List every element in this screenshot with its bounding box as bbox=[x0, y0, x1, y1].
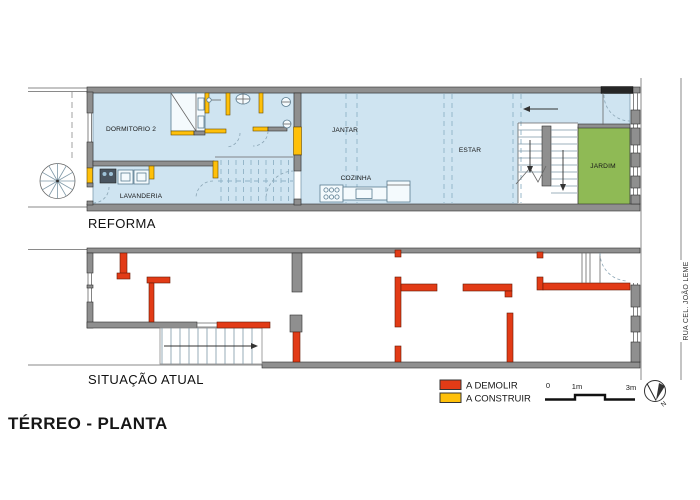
plan-reforma: DORMITORIO 2 LAVANDERIA JANTAR COZINHA E… bbox=[28, 87, 640, 232]
plan-situacao-atual: SITUAÇÃO ATUAL bbox=[28, 248, 640, 387]
plan-label-reforma: REFORMA bbox=[88, 216, 156, 231]
sheet-title: TÉRREO - PLANTA bbox=[8, 414, 168, 433]
new-wall bbox=[87, 168, 93, 183]
room-label-dormitorio: DORMITORIO 2 bbox=[106, 126, 156, 133]
existing-stair bbox=[160, 328, 262, 364]
legend-label-demolir: A DEMOLIR bbox=[466, 381, 518, 392]
legend-swatch-construir bbox=[440, 393, 461, 403]
legend-label-construir: A CONSTRUIR bbox=[466, 394, 531, 405]
street-fence-reforma bbox=[631, 93, 640, 204]
new-wall bbox=[171, 131, 194, 135]
new-wall bbox=[213, 161, 218, 178]
scale-bar: 0 1m 3m bbox=[545, 381, 636, 400]
street: RUA CEL. JOÃO LEME bbox=[641, 78, 690, 380]
scale-tick-0: 0 bbox=[546, 381, 550, 390]
room-label-cozinha: COZINHA bbox=[341, 175, 372, 182]
plan-drawing: DORMITORIO 2 LAVANDERIA JANTAR COZINHA E… bbox=[0, 0, 700, 500]
legend-swatch-demolir bbox=[440, 380, 461, 390]
room-label-jantar: JANTAR bbox=[332, 127, 358, 134]
scale-tick-3m: 3m bbox=[626, 383, 636, 392]
room-label-jardim: JARDIM bbox=[590, 163, 615, 170]
room-label-estar: ESTAR bbox=[459, 147, 481, 154]
north-arrow-icon: N bbox=[645, 381, 669, 409]
street-name: RUA CEL. JOÃO LEME bbox=[681, 261, 690, 340]
room-label-lavanderia: LAVANDERIA bbox=[120, 193, 163, 200]
new-wall bbox=[294, 127, 302, 155]
wardrobe bbox=[171, 93, 205, 131]
plan-label-situacao: SITUAÇÃO ATUAL bbox=[88, 372, 204, 387]
floor-plan-sheet: DORMITORIO 2 LAVANDERIA JANTAR COZINHA E… bbox=[0, 0, 700, 500]
legend: A DEMOLIR A CONSTRUIR bbox=[440, 380, 531, 405]
existing-entrance bbox=[582, 253, 628, 283]
laundry-equipment bbox=[100, 169, 149, 184]
new-wall bbox=[149, 166, 154, 179]
north-label: N bbox=[660, 400, 668, 409]
scale-bar-line bbox=[545, 395, 635, 400]
street-fence-situacao bbox=[631, 283, 640, 362]
scale-tick-1m: 1m bbox=[572, 382, 582, 391]
spiral-stair bbox=[40, 164, 75, 199]
